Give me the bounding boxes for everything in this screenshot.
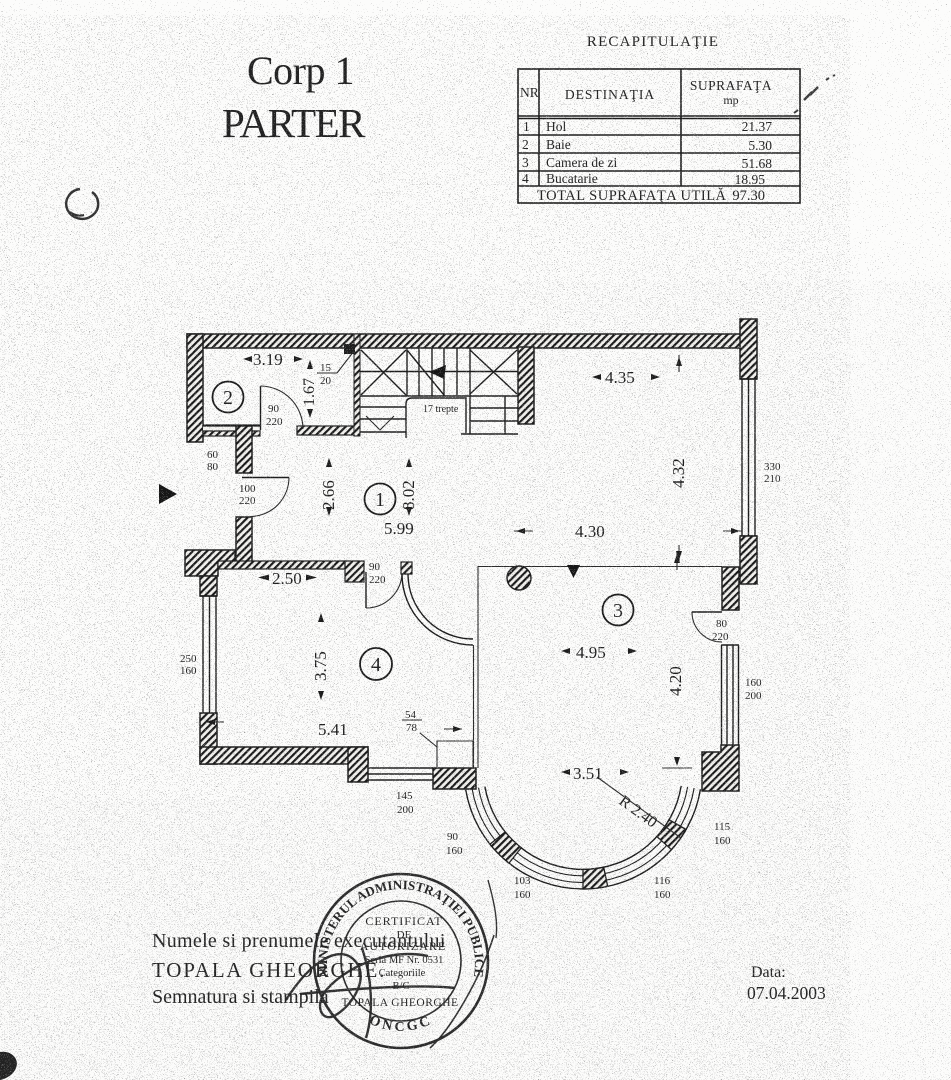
- svg-text:220: 220: [712, 631, 729, 643]
- svg-text:115: 115: [714, 821, 731, 833]
- svg-text:4.32: 4.32: [669, 458, 688, 488]
- svg-text:4.30: 4.30: [575, 522, 605, 541]
- svg-text:4.20: 4.20: [666, 666, 685, 696]
- svg-text:4.35: 4.35: [605, 368, 635, 387]
- svg-text:3.51: 3.51: [573, 764, 603, 783]
- svg-text:160: 160: [714, 835, 731, 847]
- svg-text:80: 80: [716, 618, 728, 630]
